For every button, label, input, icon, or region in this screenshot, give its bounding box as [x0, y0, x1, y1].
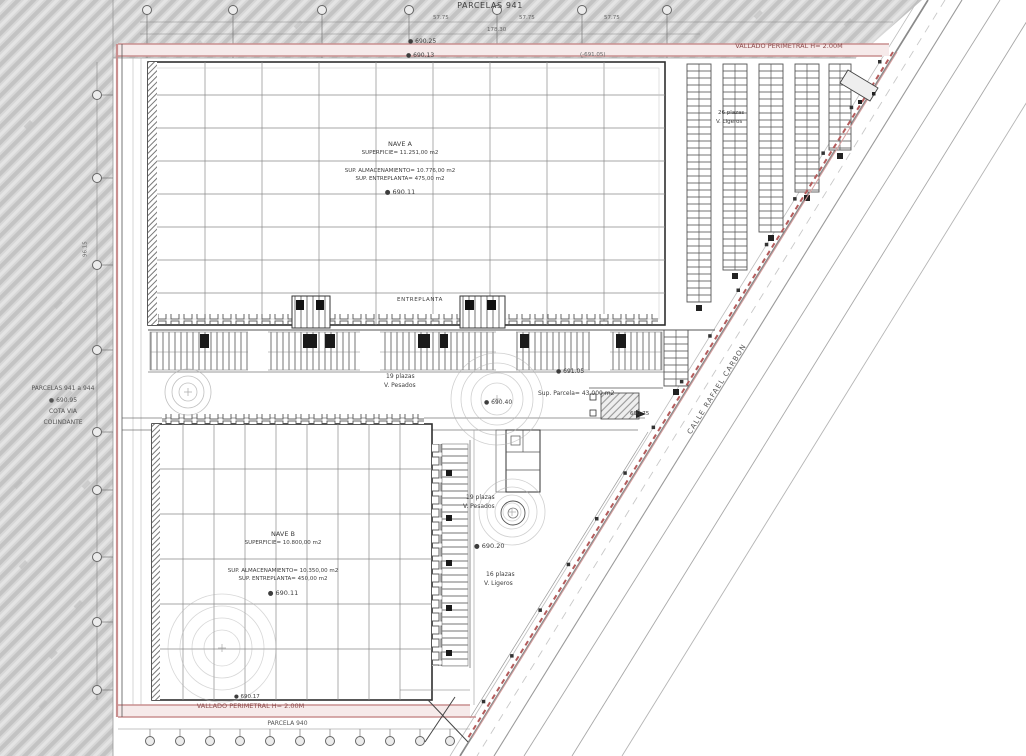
dim-3: 57.75	[604, 15, 620, 21]
parking-light-east-type: V. Ligeros	[716, 119, 742, 125]
dim-5: 96.15	[83, 241, 89, 257]
left-parcels-line2: COTA VIA	[16, 409, 110, 416]
nave-b-storage: SUP. ALMACENAMIENTO= 10.350,00 m2	[193, 568, 373, 574]
parking-trucks-south-count: 19 plazas	[466, 495, 495, 502]
parking-light-south-count: 16 plazas	[486, 572, 515, 579]
elevation-top-c: (-691.05)	[580, 52, 606, 58]
fence-bottom-label: VALLADO PERIMETRAL H= 2.00M	[148, 703, 353, 710]
dim-2: 57.75	[519, 15, 535, 21]
nave-b-footprint	[152, 424, 432, 700]
parcel-bottom-label: PARCELA 940	[240, 721, 335, 728]
nave-a-elevation: ● 690.11	[330, 189, 470, 196]
nave-b-surface: SUPERFICIE= 10.800,00 m2	[213, 540, 353, 546]
elevation-top-b: ● 690.13	[406, 53, 434, 60]
parking-light-south-type: V. Ligeros	[484, 581, 513, 588]
left-parcels-line3: COLINDANTE	[16, 420, 110, 427]
mezzanine-label: ENTREPLANTA	[380, 297, 460, 303]
elevation-yard-mid: ● 690.40	[484, 400, 512, 407]
elevation-top-a: ● 690.25	[408, 39, 436, 46]
left-parcels-title: PARCELAS 941 a 944	[16, 386, 110, 393]
nave-b-mezzanine: SUP. ENTREPLANTA= 450,00 m2	[193, 576, 373, 582]
nave-a-storage: SUP. ALMACENAMIENTO= 10.776,00 m2	[300, 168, 500, 174]
nave-a-mezzanine: SUP. ENTREPLANTA= 475,00 m2	[300, 176, 500, 182]
site-area-label: Sup. Parcela= 43.000 m2	[538, 391, 614, 398]
left-parcels-elevation: ● 690.95	[16, 398, 110, 405]
elevation-yard-high: ● 691.05	[556, 369, 584, 376]
elevation-gate: 690.75	[630, 411, 649, 417]
nave-a-surface: SUPERFICIE= 11.251,00 m2	[320, 150, 480, 156]
nave-a-name: NAVE A	[330, 141, 470, 148]
parking-trucks-mid-count: 19 plazas	[386, 374, 415, 381]
east-parking-region	[680, 60, 860, 310]
elevation-bottom: ● 690.17	[234, 694, 260, 700]
site-plan-sheet: PARCELAS 941 VALLADO PERIMETRAL H= 2.00M…	[0, 0, 1026, 756]
parking-trucks-mid-type: V. Pesados	[384, 383, 416, 390]
nave-b-name: NAVE B	[233, 531, 333, 538]
parking-light-east-count: 26 plazas	[718, 110, 744, 116]
parcel-top-label: PARCELAS 941	[400, 1, 580, 10]
dim-4: 178.30	[487, 27, 506, 33]
elevation-south: ● 690.20	[474, 543, 504, 550]
parking-trucks-south-type: V. Pesados	[463, 504, 495, 511]
fence-top-label: VALLADO PERIMETRAL H= 2.00M	[690, 43, 888, 50]
dim-1: 57.75	[433, 15, 449, 21]
nave-b-elevation: ● 690.11	[233, 590, 333, 597]
